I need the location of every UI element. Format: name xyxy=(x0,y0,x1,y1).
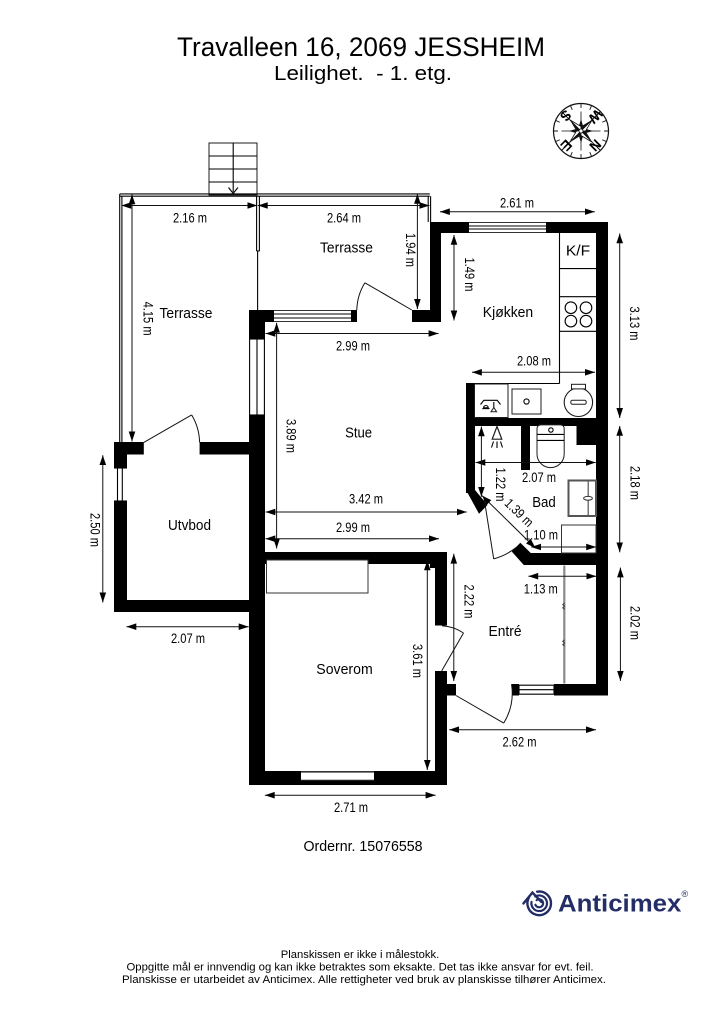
svg-text:2.07 m: 2.07 m xyxy=(171,631,205,646)
svg-text:4.15 m: 4.15 m xyxy=(140,302,155,336)
svg-text:3.42 m: 3.42 m xyxy=(349,492,383,507)
svg-text:Oppgitte mål er innvendig og k: Oppgitte mål er innvendig og kan ikke be… xyxy=(127,962,594,974)
svg-text:3.13 m: 3.13 m xyxy=(627,307,642,341)
svg-text:2.22 m: 2.22 m xyxy=(462,585,477,619)
svg-text:Bad: Bad xyxy=(532,494,556,511)
svg-text:2.62 m: 2.62 m xyxy=(503,735,537,750)
svg-text:Utvbod: Utvbod xyxy=(168,517,211,534)
svg-text:2.71 m: 2.71 m xyxy=(334,800,368,815)
svg-text:Planskissen er ikke i målestok: Planskissen er ikke i målestokk. xyxy=(281,949,440,961)
svg-text:2.18 m: 2.18 m xyxy=(627,466,642,500)
svg-text:K/F: K/F xyxy=(566,243,590,260)
svg-text:2.99 m: 2.99 m xyxy=(336,520,370,535)
svg-text:1.94 m: 1.94 m xyxy=(403,233,418,267)
svg-text:Terrasse: Terrasse xyxy=(320,240,373,257)
svg-text:Entré: Entré xyxy=(489,623,522,640)
svg-text:3.89 m: 3.89 m xyxy=(284,419,299,453)
svg-text:2.50 m: 2.50 m xyxy=(88,513,103,547)
svg-text:1.13 m: 1.13 m xyxy=(524,582,558,597)
svg-text:3.61 m: 3.61 m xyxy=(410,644,425,678)
svg-text:2.99 m: 2.99 m xyxy=(336,339,370,354)
svg-text:Anticimex: Anticimex xyxy=(558,891,682,918)
svg-text:2.07 m: 2.07 m xyxy=(522,470,556,485)
svg-text:Terrasse: Terrasse xyxy=(160,305,213,322)
svg-text:2.16 m: 2.16 m xyxy=(173,211,207,226)
svg-text:®: ® xyxy=(682,889,689,899)
svg-text:Ordernr. 15076558: Ordernr. 15076558 xyxy=(304,838,423,855)
svg-text:1.49 m: 1.49 m xyxy=(462,258,477,292)
svg-text:Stue: Stue xyxy=(345,425,372,442)
svg-text:2.64 m: 2.64 m xyxy=(327,211,361,226)
svg-text:2.08 m: 2.08 m xyxy=(517,353,551,368)
svg-text:1.10 m: 1.10 m xyxy=(524,528,558,543)
svg-text:2.02 m: 2.02 m xyxy=(628,606,643,640)
svg-text:Planskisse er utarbeidet av An: Planskisse er utarbeidet av Anticimex. A… xyxy=(122,974,606,986)
svg-text:Soverom: Soverom xyxy=(316,661,372,678)
svg-text:Travalleen 16, 2069 JESSHEIM: Travalleen 16, 2069 JESSHEIM xyxy=(177,32,545,62)
svg-text:Leilighet. - 1. etg.: Leilighet. - 1. etg. xyxy=(274,63,452,85)
svg-text:1.22 m: 1.22 m xyxy=(493,468,508,502)
svg-text:2.61 m: 2.61 m xyxy=(500,196,534,211)
svg-text:Kjøkken: Kjøkken xyxy=(483,304,533,321)
